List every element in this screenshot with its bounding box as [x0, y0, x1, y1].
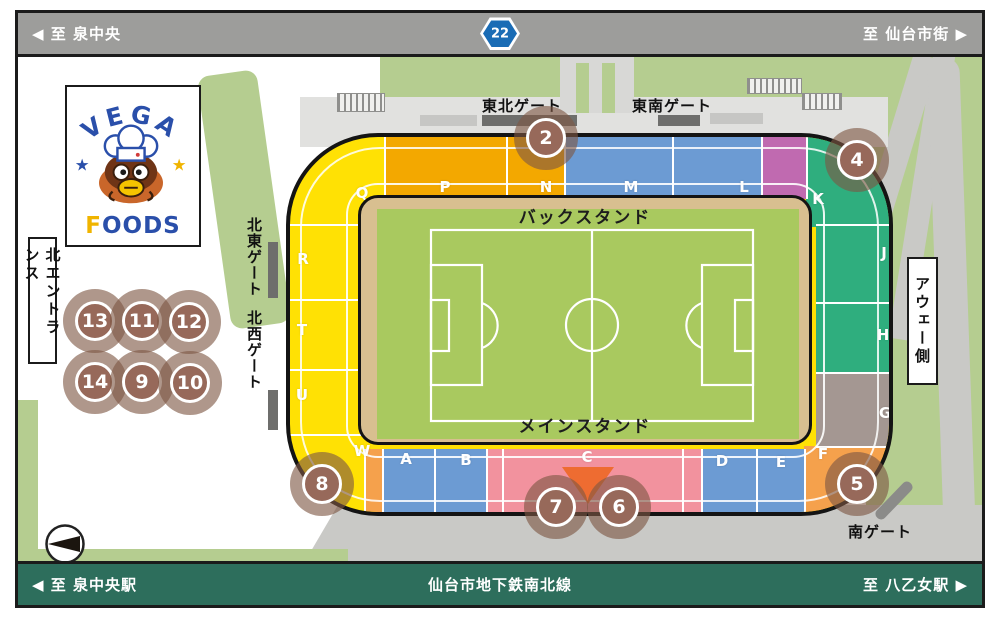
gate-north-west-side-bar: [268, 390, 278, 430]
stairs-northwest: [337, 93, 385, 112]
top-road-right-label: 至 仙台市街 ▶: [863, 23, 968, 44]
logo-foods-text: FOODS: [67, 213, 199, 239]
section-d: D: [716, 452, 728, 470]
stairs-northeast-1: [747, 78, 802, 94]
gate-north-west-side-label: 北西ゲート: [244, 310, 265, 390]
section-u: U: [296, 386, 308, 404]
section-n: N: [540, 178, 553, 196]
away-side-box: アウェー側: [907, 257, 938, 385]
map-frame: ◀ 至 泉中央 22 至 仙台市街 ▶: [15, 10, 985, 608]
section-l: L: [739, 178, 749, 196]
star-left-icon: ★: [75, 155, 90, 174]
top-road-bar: ◀ 至 泉中央 22 至 仙台市街 ▶: [18, 13, 982, 57]
north-entrance-box: 北エントランス: [28, 237, 57, 364]
section-c: C: [581, 448, 592, 466]
section-m: M: [624, 178, 639, 196]
gate-southeast-label: 東南ゲート: [632, 95, 712, 116]
stand-top-blue: [564, 137, 761, 199]
vega-mascot-graphic: VEGA ★ ★: [67, 87, 195, 209]
section-w: W: [354, 442, 371, 460]
southwest-grass-band: [18, 400, 38, 561]
star-right-icon: ★: [172, 155, 187, 174]
section-t: T: [297, 321, 307, 339]
eagle-mascot-icon: [99, 126, 163, 204]
north-entrance-bar-2: [710, 113, 763, 124]
section-g: G: [879, 404, 891, 422]
section-a: A: [400, 450, 412, 468]
gate-southeast-bar: [658, 115, 700, 126]
north-gate-plaza: [560, 57, 634, 113]
main-stand-label: メインスタンド: [361, 412, 809, 437]
stand-top-purple: [761, 137, 806, 199]
route-22-badge: 22: [480, 17, 520, 50]
vega-foods-logo: VEGA ★ ★: [65, 85, 201, 247]
stadium-gourmet-map: ◀ 至 泉中央 22 至 仙台市街 ▶: [0, 0, 1000, 620]
section-r: R: [297, 250, 309, 268]
section-p: P: [440, 178, 451, 196]
pitch-area: バックスタンド メインスタンド: [358, 195, 812, 445]
top-road-left-label: ◀ 至 泉中央: [32, 23, 121, 44]
section-h: H: [877, 326, 890, 344]
subway-left-label: ◀ 至 泉中央駅: [32, 574, 137, 595]
section-e: E: [776, 453, 786, 471]
section-j: J: [881, 244, 887, 262]
subway-right-label: 至 八乙女駅 ▶: [863, 574, 968, 595]
crosswalk-green-2: [602, 63, 615, 113]
stairs-northeast-2: [802, 93, 842, 110]
route-number: 22: [483, 20, 517, 47]
crosswalk-green-1: [576, 63, 589, 113]
back-stand-label: バックスタンド: [361, 203, 809, 228]
gate-north-east-side-label: 北東ゲート: [244, 217, 265, 297]
gate-south-label: 南ゲート: [848, 521, 912, 542]
compass-icon: [44, 523, 86, 561]
soccer-field: [361, 198, 812, 445]
section-k: K: [812, 190, 824, 208]
section-b: B: [460, 451, 471, 469]
section-f: F: [818, 445, 828, 463]
gate-north-east-side-bar: [268, 242, 278, 298]
map-body: Q P N M L K J H G F E D C B A W U T R: [18, 57, 982, 561]
subway-bar: ◀ 至 泉中央駅 仙台市地下鉄南北線 至 八乙女駅 ▶: [18, 561, 982, 605]
north-entrance-bar-1: [420, 115, 477, 126]
subway-line-label: 仙台市地下鉄南北線: [428, 574, 572, 595]
